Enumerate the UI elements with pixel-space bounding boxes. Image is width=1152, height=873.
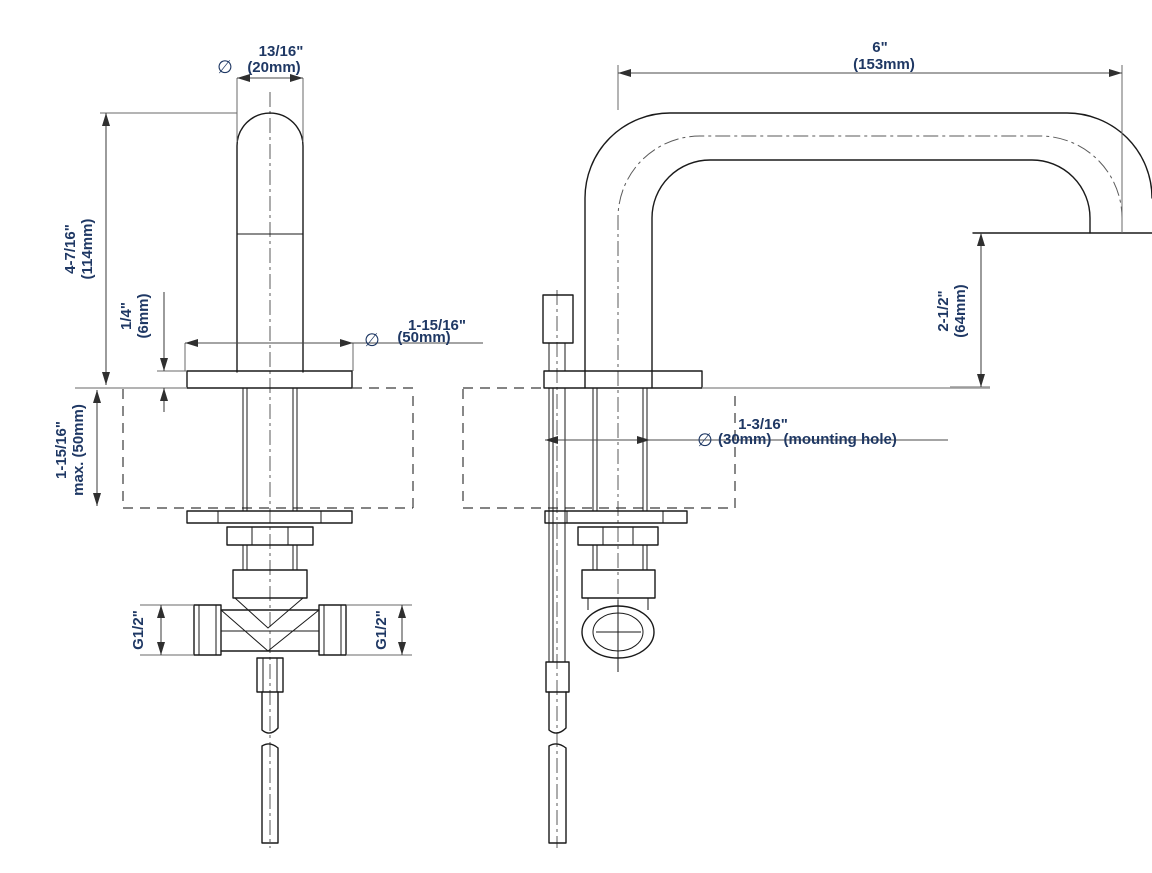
dim-base-mm: (50mm) bbox=[397, 329, 450, 346]
dim-deck-in: 1-15/16" bbox=[53, 421, 70, 479]
dim-handle-height: 4-7/16" (114mm) bbox=[62, 113, 237, 385]
dim-spout-height: 2-1/2" (64mm) bbox=[935, 233, 990, 387]
dim-base-diameter: 1-15/16" ∅ (50mm) bbox=[185, 317, 483, 371]
shank-threads-side bbox=[593, 388, 647, 511]
dim-reach-in: 6" bbox=[872, 39, 887, 56]
dim-hole-mm: (30mm) (mounting hole) bbox=[718, 431, 897, 448]
dim-hole-mm-value: (30mm) bbox=[718, 431, 771, 448]
dim-g-right: G1/2" bbox=[346, 605, 412, 655]
dim-handle-diameter-in: 13/16" bbox=[259, 43, 304, 60]
dim-mounting-hole: 1-3/16" ∅ (30mm) (mounting hole) bbox=[545, 416, 948, 450]
counter-section-front bbox=[123, 389, 413, 508]
outlet-crosshair bbox=[596, 600, 641, 672]
diameter-symbol: ∅ bbox=[217, 57, 233, 77]
dim-hole-note: (mounting hole) bbox=[784, 431, 897, 448]
side-view: 6" (153mm) 2-1/2" (64mm) 1-3/16" ∅ (30mm… bbox=[463, 39, 1152, 848]
counter-section-side bbox=[463, 389, 735, 508]
diameter-symbol: ∅ bbox=[364, 330, 380, 350]
dim-plate-in: 1/4" bbox=[118, 302, 135, 330]
dim-handle-diameter: ∅ 13/16" (20mm) bbox=[217, 43, 303, 142]
spout-inner bbox=[652, 160, 1090, 388]
dim-plate-mm: (6mm) bbox=[135, 293, 152, 338]
diameter-symbol: ∅ bbox=[697, 430, 713, 450]
dim-deck-thickness: 1-15/16" max. (50mm) bbox=[53, 390, 101, 506]
dim-g-left: G1/2" bbox=[130, 605, 194, 655]
dim-spout-height-in: 2-1/2" bbox=[935, 290, 952, 331]
dim-height-mm: (114mm) bbox=[79, 219, 96, 280]
pull-rod-knob bbox=[543, 295, 573, 343]
dim-g-left-label: G1/2" bbox=[130, 610, 147, 650]
mounting-flange-side bbox=[545, 511, 687, 523]
dim-deck-mm: max. (50mm) bbox=[70, 404, 87, 496]
dim-handle-diameter-mm: (20mm) bbox=[247, 59, 300, 76]
dim-spout-height-mm: (64mm) bbox=[952, 284, 969, 337]
spout-outer bbox=[585, 113, 1152, 388]
front-view: ∅ 13/16" (20mm) 4-7/16" (114mm) 1/4" (6m… bbox=[53, 43, 483, 848]
dim-g-right-label: G1/2" bbox=[373, 610, 390, 650]
base-plate-side bbox=[544, 371, 702, 388]
dim-reach-mm: (153mm) bbox=[853, 56, 915, 73]
dim-height-in: 4-7/16" bbox=[62, 224, 79, 274]
dim-plate-thickness: 1/4" (6mm) bbox=[118, 292, 187, 412]
spout-centerline bbox=[618, 136, 1122, 672]
technical-drawing-canvas: ∅ 13/16" (20mm) 4-7/16" (114mm) 1/4" (6m… bbox=[0, 0, 1152, 873]
